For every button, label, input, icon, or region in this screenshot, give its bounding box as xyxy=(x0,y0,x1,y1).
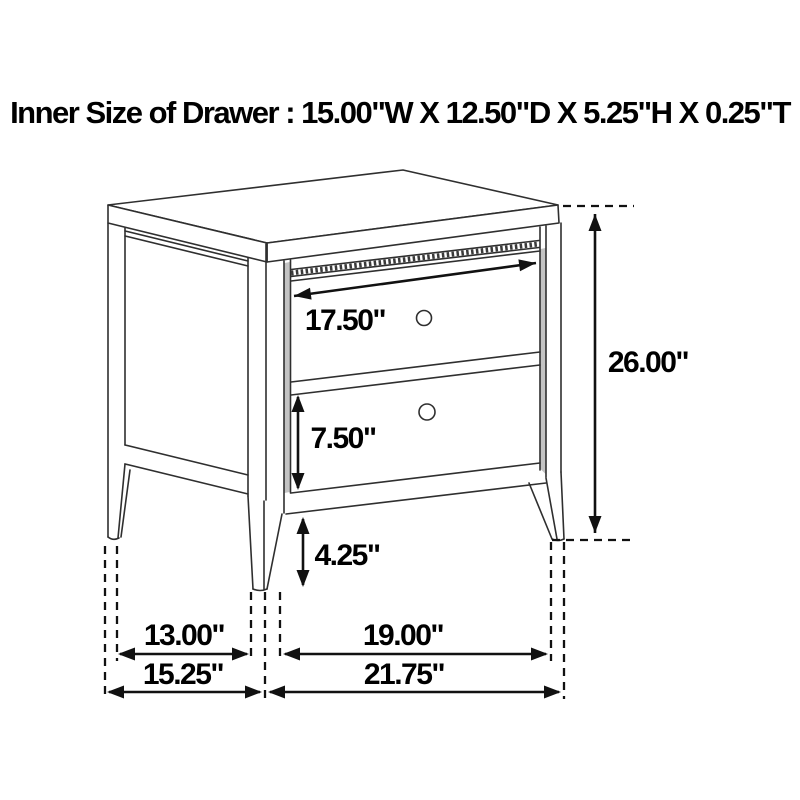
dim-bottom-drawer-height-label: 7.50" xyxy=(310,422,375,455)
left-side-panel xyxy=(108,223,266,537)
dim-overall-width: 21.75" xyxy=(268,658,561,699)
top-drawer-bottom-edge xyxy=(291,352,540,382)
dim-inner-width-arrowhead-left xyxy=(283,648,300,661)
front-right-leg-right-edge xyxy=(561,472,564,539)
front-bottom-rail-lower-edge xyxy=(286,483,546,514)
front-right-leg xyxy=(529,472,564,541)
back-left-leg-inner-edge xyxy=(121,470,130,537)
dim-bottom-drawer-height-arrowhead-bottom xyxy=(292,473,305,490)
dim-inner-width: 19.00" xyxy=(283,619,548,661)
nightstand-dimension-drawing: Inner Size of Drawer : 15.00"W X 12.50"D… xyxy=(0,0,800,800)
page-title: Inner Size of Drawer : 15.00"W X 12.50"D… xyxy=(10,95,791,130)
left-opening-shadow xyxy=(285,262,290,493)
dim-inner-depth-arrowhead-right xyxy=(232,648,249,661)
dim-overall-height-arrowhead-bottom xyxy=(589,516,602,533)
dim-overall-depth: 15.25" xyxy=(107,658,262,699)
dim-top-drawer-width-arrowhead-right xyxy=(518,259,536,271)
back-left-leg xyxy=(108,464,130,539)
dim-leg-height: 4.25" xyxy=(297,517,380,587)
dim-overall-width-label: 21.75" xyxy=(364,658,445,691)
dim-inner-width-label: 19.00" xyxy=(363,619,444,652)
dimension-diagram-page: Inner Size of Drawer : 15.00"W X 12.50"D… xyxy=(0,0,800,800)
dim-bottom-drawer-height: 7.50" xyxy=(292,395,376,490)
dim-overall-depth-arrowhead-right xyxy=(245,686,262,699)
dim-leg-height-label: 4.25" xyxy=(314,539,379,572)
side-bottom-rail-upper xyxy=(125,445,248,475)
dim-inner-depth: 13.00" xyxy=(118,619,249,661)
front-left-leg-bottom xyxy=(253,589,267,591)
dim-overall-width-arrowhead-left xyxy=(268,686,285,699)
dim-inner-depth-label: 13.00" xyxy=(144,619,225,652)
front-left-leg xyxy=(248,496,282,591)
dim-inner-width-arrowhead-right xyxy=(531,648,548,661)
dim-overall-height: 26.00" xyxy=(589,214,689,533)
dim-overall-height-arrowhead-top xyxy=(589,214,602,231)
dim-overall-depth-label: 15.25" xyxy=(143,658,224,691)
dim-top-drawer-width-label: 17.50" xyxy=(305,304,386,337)
dim-inner-depth-arrowhead-left xyxy=(118,648,135,661)
dim-top-drawer-width: 17.50" xyxy=(294,259,536,337)
mid-rail-lower-edge xyxy=(291,365,540,395)
dim-overall-depth-arrowhead-left xyxy=(107,686,124,699)
front-left-leg-left-edge xyxy=(248,496,253,589)
dim-overall-width-arrowhead-right xyxy=(544,686,561,699)
dim-top-drawer-width-arrowhead-left xyxy=(294,288,312,300)
right-opening-shadow xyxy=(541,248,546,474)
front-left-leg-right-edge xyxy=(267,514,282,589)
dim-leg-height-arrowhead-top xyxy=(297,517,310,534)
top-drawer-knob xyxy=(417,311,432,326)
side-bottom-rail-lower xyxy=(125,464,248,494)
bottom-drawer-knob xyxy=(419,404,435,420)
dim-leg-height-arrowhead-bottom xyxy=(297,570,310,587)
back-left-leg-taper xyxy=(118,464,125,538)
dim-overall-height-label: 26.00" xyxy=(608,346,689,379)
nightstand-illustration xyxy=(108,170,564,591)
dim-bottom-drawer-height-arrowhead-top xyxy=(292,395,305,412)
